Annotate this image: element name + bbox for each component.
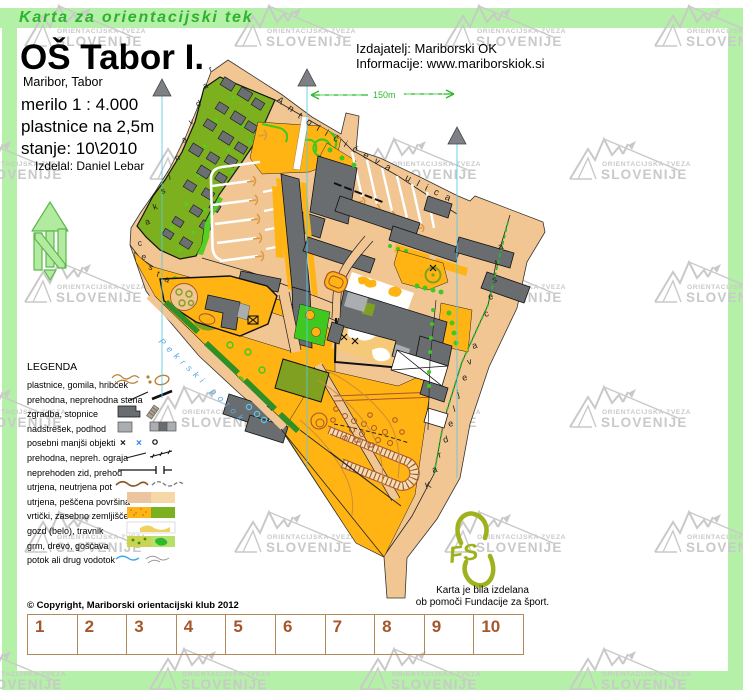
svg-text:150m: 150m <box>373 90 396 100</box>
svg-text:FS: FS <box>447 538 480 568</box>
svg-text:r: r <box>207 63 213 73</box>
